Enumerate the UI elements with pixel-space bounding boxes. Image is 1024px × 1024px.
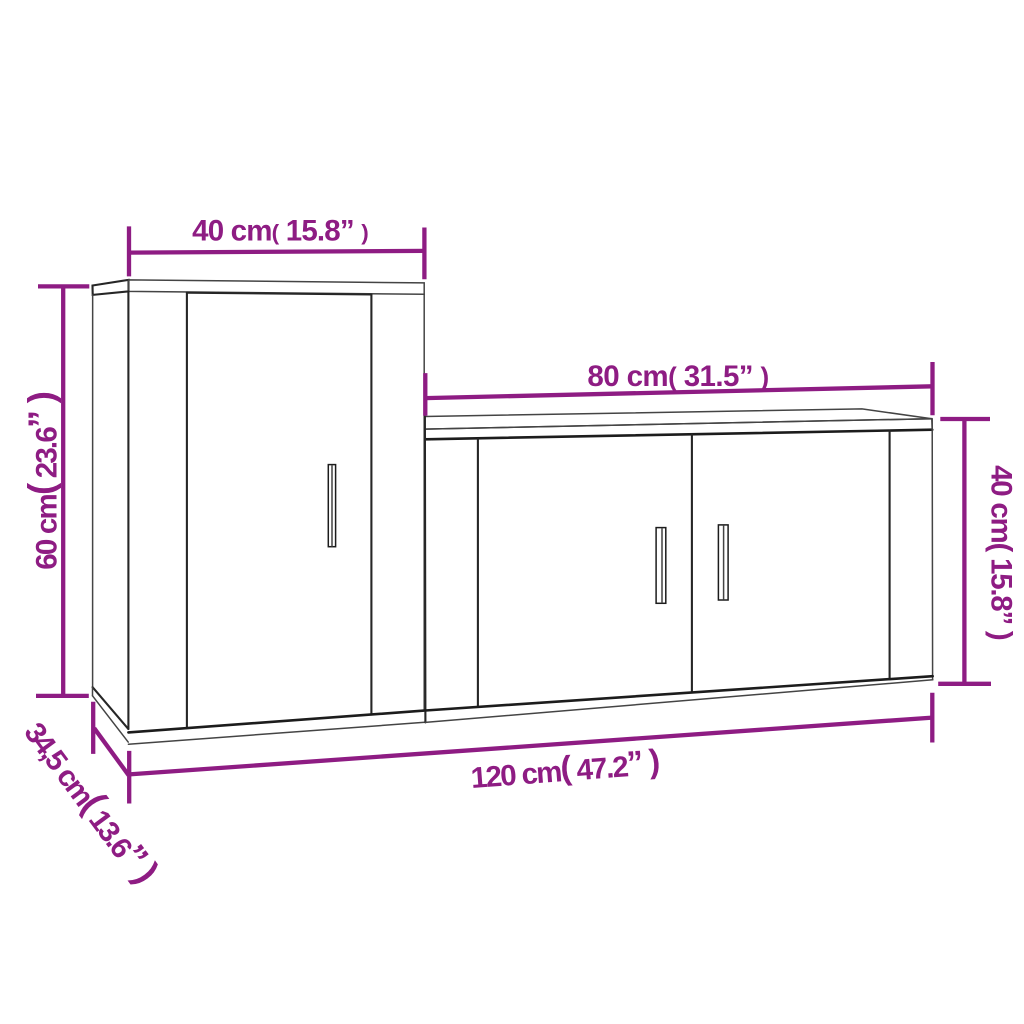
svg-text:40 cm( 15.8” ): 40 cm( 15.8” ): [192, 214, 368, 247]
svg-text:80 cm( 31.5” ): 80 cm( 31.5” ): [587, 360, 768, 393]
svg-text:40 cm( 15.8” ): 40 cm( 15.8” ): [985, 465, 1018, 640]
